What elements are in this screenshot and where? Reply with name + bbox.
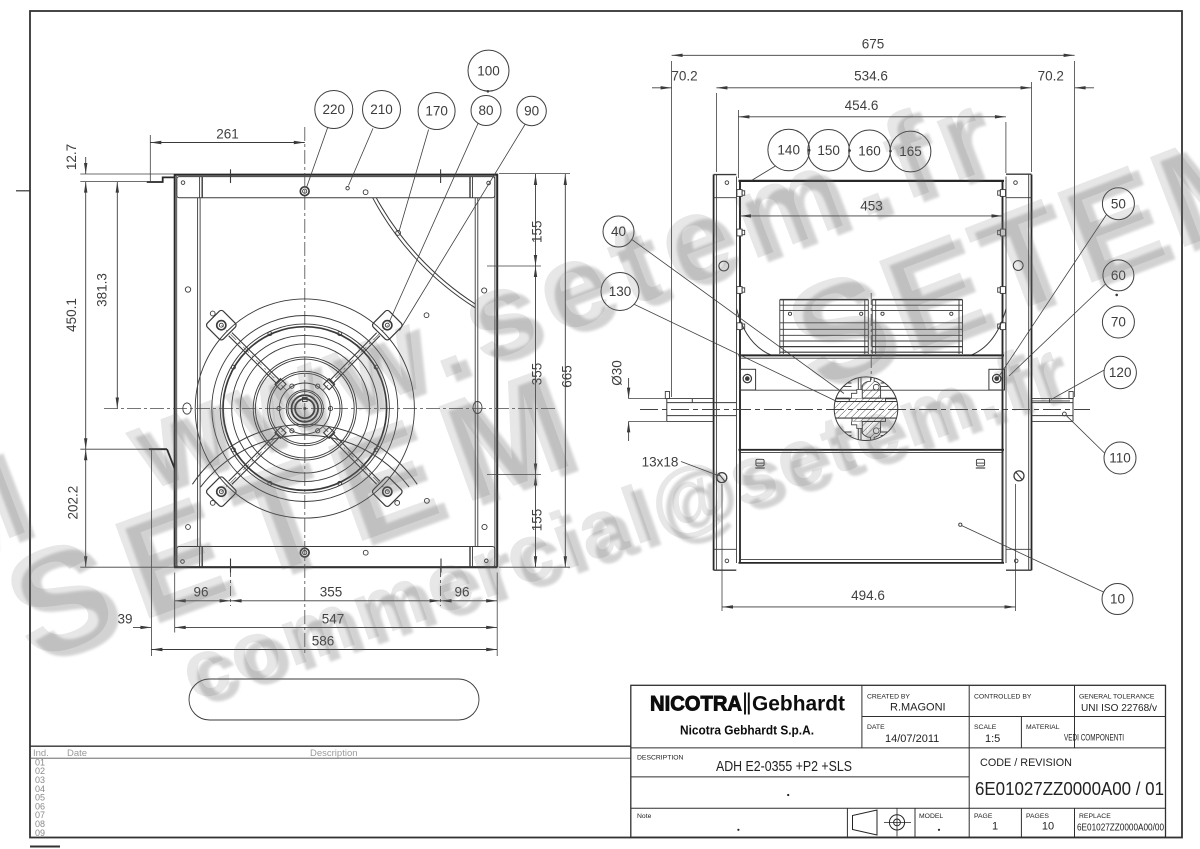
svg-text:PAGE: PAGE bbox=[974, 813, 993, 820]
svg-text:1: 1 bbox=[992, 821, 998, 833]
svg-text:90: 90 bbox=[524, 104, 539, 119]
svg-text:Note: Note bbox=[637, 813, 652, 820]
svg-text:R.MAGONI: R.MAGONI bbox=[890, 702, 946, 714]
svg-text:381.3: 381.3 bbox=[94, 273, 109, 307]
svg-text:UNI ISO 22768/v: UNI ISO 22768/v bbox=[1081, 702, 1158, 714]
svg-text:220: 220 bbox=[323, 102, 346, 117]
svg-text:CONTROLLED BY: CONTROLLED BY bbox=[974, 694, 1032, 701]
svg-text:12.7: 12.7 bbox=[64, 144, 79, 170]
svg-text:MODEL: MODEL bbox=[919, 813, 943, 820]
svg-text:80: 80 bbox=[478, 103, 493, 118]
svg-text:70.2: 70.2 bbox=[1038, 69, 1064, 84]
svg-text:70: 70 bbox=[1111, 315, 1126, 330]
svg-text:210: 210 bbox=[370, 102, 393, 117]
svg-text:120: 120 bbox=[1109, 365, 1132, 380]
svg-text:SCALE: SCALE bbox=[974, 724, 997, 731]
svg-text:534.6: 534.6 bbox=[854, 69, 888, 84]
svg-text:675: 675 bbox=[862, 37, 885, 52]
svg-text:GENERAL TOLERANCE: GENERAL TOLERANCE bbox=[1079, 694, 1155, 701]
svg-text:MATERIAL: MATERIAL bbox=[1026, 724, 1060, 731]
svg-text:6E01027ZZ0000A00 / 01: 6E01027ZZ0000A00 / 01 bbox=[975, 778, 1164, 799]
svg-text:14/07/2011: 14/07/2011 bbox=[885, 733, 939, 745]
svg-text:CREATED BY: CREATED BY bbox=[867, 694, 910, 701]
svg-text:6E01027ZZ0000A00/00: 6E01027ZZ0000A00/00 bbox=[1077, 823, 1164, 834]
svg-text:Gebhardt: Gebhardt bbox=[752, 693, 845, 716]
svg-text:10: 10 bbox=[1042, 821, 1054, 833]
svg-text:1:5: 1:5 bbox=[985, 733, 1000, 745]
svg-text:10: 10 bbox=[1110, 592, 1125, 607]
svg-text:170: 170 bbox=[425, 104, 448, 119]
svg-text:ADH E2-0355 +P2 +SLS: ADH E2-0355 +P2 +SLS bbox=[716, 759, 852, 775]
svg-text:CODE / REVISION: CODE / REVISION bbox=[980, 757, 1072, 769]
svg-text:Description: Description bbox=[310, 748, 358, 759]
svg-text:DESCRIPTION: DESCRIPTION bbox=[637, 755, 684, 762]
svg-text:VEDI COMPONENTI: VEDI COMPONENTI bbox=[1064, 733, 1124, 743]
svg-text:REPLACE: REPLACE bbox=[1079, 813, 1111, 820]
svg-text:PAGES: PAGES bbox=[1026, 813, 1049, 820]
svg-text:494.6: 494.6 bbox=[851, 588, 885, 603]
svg-text:100: 100 bbox=[477, 63, 500, 78]
svg-text:261: 261 bbox=[216, 127, 239, 142]
svg-text:450.1: 450.1 bbox=[64, 298, 79, 332]
svg-text:Ø30: Ø30 bbox=[610, 360, 625, 386]
svg-text:Date: Date bbox=[67, 748, 87, 759]
svg-text:NICOTRA: NICOTRA bbox=[650, 693, 742, 716]
svg-text:110: 110 bbox=[1109, 451, 1131, 466]
svg-text:09: 09 bbox=[35, 828, 45, 838]
svg-text:DATE: DATE bbox=[867, 724, 885, 731]
svg-text:Nicotra Gebhardt S.p.A.: Nicotra Gebhardt S.p.A. bbox=[680, 723, 814, 738]
svg-text:70.2: 70.2 bbox=[671, 69, 697, 84]
